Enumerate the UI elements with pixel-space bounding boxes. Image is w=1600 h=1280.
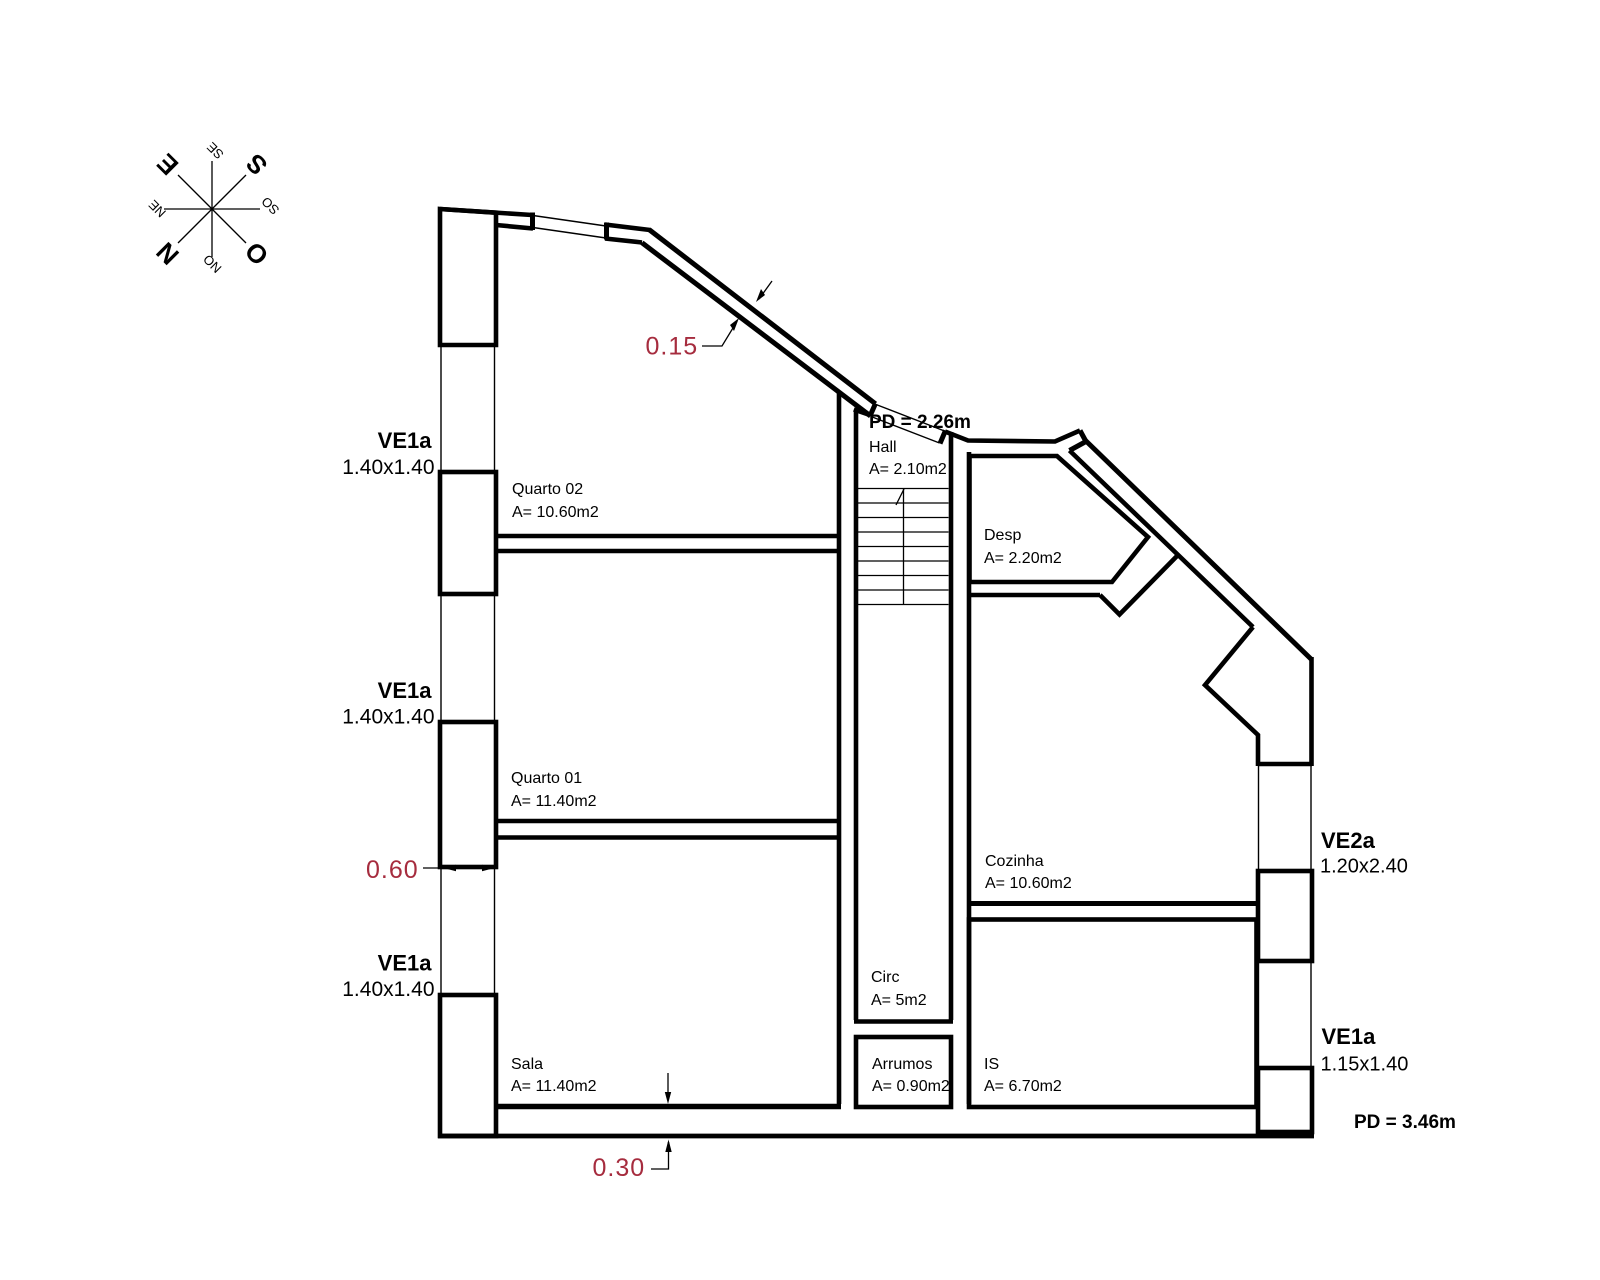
svg-text:A= 2.20m2: A= 2.20m2 [984, 550, 1062, 567]
svg-text:Sala: Sala [511, 1056, 543, 1073]
svg-text:0.30: 0.30 [593, 1154, 646, 1182]
svg-text:IS: IS [984, 1056, 999, 1073]
svg-text:A= 6.70m2: A= 6.70m2 [984, 1078, 1062, 1095]
svg-text:Circ: Circ [871, 969, 899, 986]
svg-text:A= 5m2: A= 5m2 [871, 992, 927, 1009]
svg-text:A= 10.60m2: A= 10.60m2 [512, 504, 599, 521]
svg-text:1.40x1.40: 1.40x1.40 [342, 978, 434, 1001]
svg-text:VE1a: VE1a [378, 951, 433, 976]
svg-text:VE1a: VE1a [378, 678, 433, 703]
svg-text:1.40x1.40: 1.40x1.40 [342, 706, 434, 729]
svg-text:A= 11.40m2: A= 11.40m2 [511, 1078, 597, 1095]
svg-text:Arrumos: Arrumos [872, 1056, 932, 1073]
svg-text:Quarto 01: Quarto 01 [511, 770, 582, 787]
svg-text:1.15x1.40: 1.15x1.40 [1321, 1054, 1409, 1076]
svg-text:A= 11.40m2: A= 11.40m2 [511, 793, 597, 810]
svg-text:A= 0.90m2: A= 0.90m2 [872, 1078, 950, 1095]
svg-text:1.40x1.40: 1.40x1.40 [342, 456, 434, 479]
svg-text:PD = 2.26m: PD = 2.26m [869, 412, 971, 433]
svg-text:Quarto 02: Quarto 02 [512, 481, 583, 498]
svg-text:0.60: 0.60 [366, 856, 419, 884]
svg-text:A= 2.10m2: A= 2.10m2 [869, 461, 947, 478]
svg-text:PD = 3.46m: PD = 3.46m [1354, 1112, 1456, 1133]
svg-text:1.20x2.40: 1.20x2.40 [1320, 856, 1408, 878]
svg-text:VE1a: VE1a [378, 428, 433, 453]
svg-text:A= 10.60m2: A= 10.60m2 [985, 875, 1072, 892]
svg-text:Desp: Desp [984, 527, 1021, 544]
svg-text:Cozinha: Cozinha [985, 853, 1044, 870]
svg-text:0.15: 0.15 [646, 333, 699, 361]
svg-text:VE1a: VE1a [1322, 1024, 1377, 1049]
svg-text:Hall: Hall [869, 439, 897, 456]
svg-text:VE2a: VE2a [1321, 828, 1376, 853]
